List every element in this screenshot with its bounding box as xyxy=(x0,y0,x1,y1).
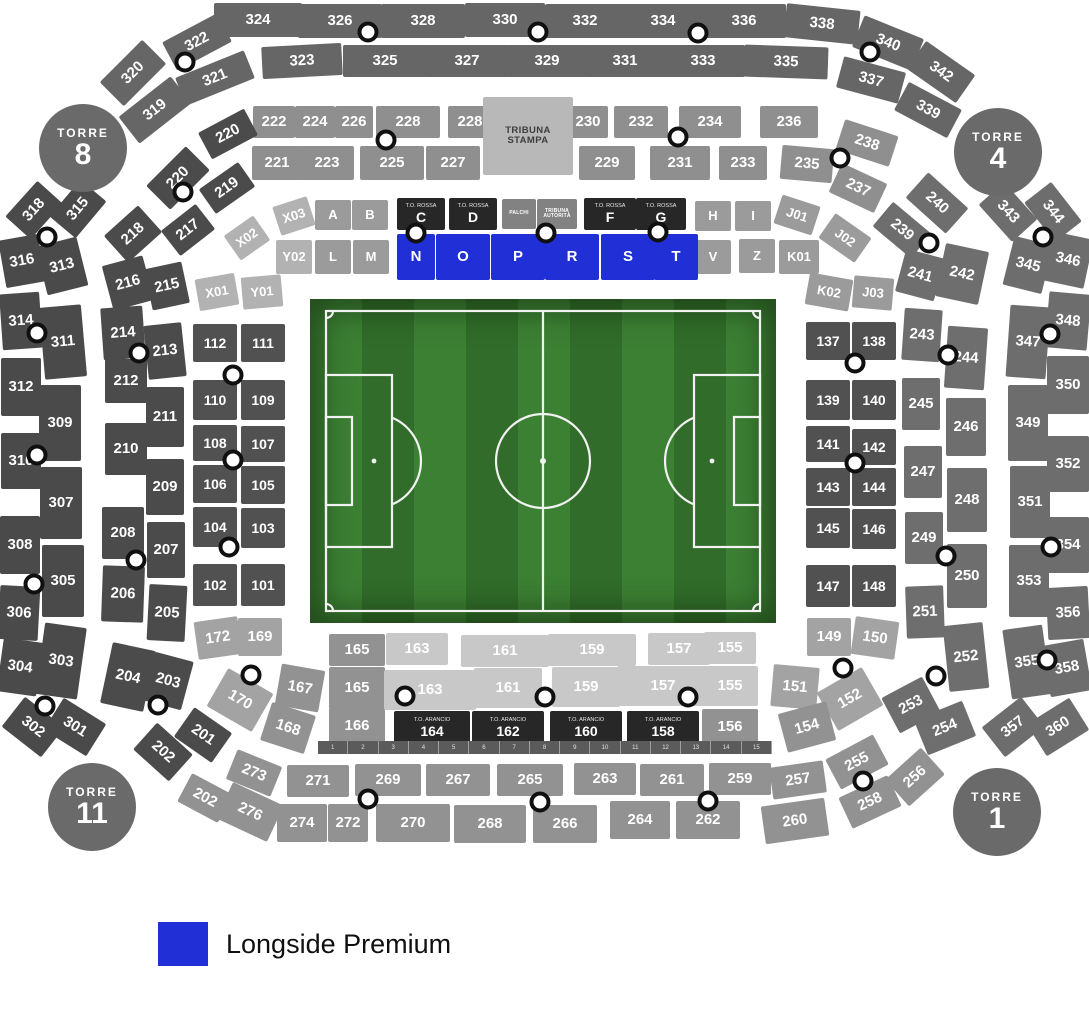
section-y01[interactable]: Y01 xyxy=(241,274,284,309)
section-h[interactable]: H xyxy=(695,201,731,231)
section-245[interactable]: 245 xyxy=(902,378,940,430)
section-s[interactable]: S xyxy=(601,234,655,280)
section-150[interactable]: 150 xyxy=(851,616,900,660)
gate-marker xyxy=(376,130,397,151)
section-235[interactable]: 235 xyxy=(780,145,835,183)
section-230[interactable]: 230 xyxy=(568,106,608,138)
section-x02[interactable]: X02 xyxy=(224,215,271,260)
section-233[interactable]: 233 xyxy=(719,146,767,180)
section-157[interactable]: 157 xyxy=(648,633,710,665)
section-217[interactable]: 217 xyxy=(161,204,215,256)
section-140[interactable]: 140 xyxy=(852,380,896,420)
gate-marker xyxy=(1041,537,1062,558)
section-237[interactable]: 237 xyxy=(829,163,888,213)
section-159[interactable]: 159 xyxy=(552,667,620,707)
section-223[interactable]: 223 xyxy=(300,146,354,180)
legend-label: Longside Premium xyxy=(226,929,451,960)
section-220[interactable]: 220 xyxy=(198,109,258,160)
gate-marker xyxy=(845,453,866,474)
legend: Longside Premium xyxy=(158,922,451,966)
section-260[interactable]: 260 xyxy=(761,798,830,845)
section-z[interactable]: Z xyxy=(739,239,775,273)
section-m[interactable]: M xyxy=(353,240,389,274)
section-148[interactable]: 148 xyxy=(852,565,896,607)
tower-4: TORRE4 xyxy=(954,108,1042,196)
section-251[interactable]: 251 xyxy=(905,585,945,638)
section-229[interactable]: 229 xyxy=(579,146,635,180)
section-i[interactable]: I xyxy=(735,201,771,231)
section-327[interactable]: 327 xyxy=(425,45,509,77)
section-224[interactable]: 224 xyxy=(295,106,335,138)
section-218[interactable]: 218 xyxy=(104,205,162,263)
section-158[interactable]: T.O. ARANCIO158 xyxy=(627,711,699,745)
gate-marker xyxy=(926,666,947,687)
section-151[interactable]: 151 xyxy=(770,664,819,710)
section-271[interactable]: 271 xyxy=(287,765,349,797)
section-j02[interactable]: J02 xyxy=(818,213,871,263)
gate-marker xyxy=(27,445,48,466)
section-165[interactable]: 165 xyxy=(329,667,385,709)
section-207[interactable]: 207 xyxy=(147,522,185,578)
section-303[interactable]: 303 xyxy=(35,622,87,699)
gate-marker xyxy=(1033,227,1054,248)
section-226[interactable]: 226 xyxy=(335,106,373,138)
section-360[interactable]: 360 xyxy=(1027,698,1089,757)
gate-marker xyxy=(395,686,416,707)
section-137[interactable]: 137 xyxy=(806,322,850,360)
section-272[interactable]: 272 xyxy=(328,804,368,842)
section-221[interactable]: 221 xyxy=(252,146,302,180)
section-palchi[interactable]: PALCHI xyxy=(502,199,536,229)
section-y02[interactable]: Y02 xyxy=(276,240,312,274)
section-325[interactable]: 325 xyxy=(343,45,427,77)
section-352[interactable]: 352 xyxy=(1047,436,1089,492)
section-335[interactable]: 335 xyxy=(743,45,828,80)
section-139[interactable]: 139 xyxy=(806,380,850,420)
section-267[interactable]: 267 xyxy=(426,764,490,796)
row-number-cell: 4 xyxy=(409,741,439,754)
section-149[interactable]: 149 xyxy=(807,618,851,656)
legend-swatch-longside-premium xyxy=(158,922,208,966)
row-number-cell: 13 xyxy=(681,741,711,754)
section-k01[interactable]: K01 xyxy=(779,240,819,274)
section-232[interactable]: 232 xyxy=(614,106,668,138)
gate-marker xyxy=(648,222,669,243)
section-o[interactable]: O xyxy=(436,234,490,280)
gate-marker xyxy=(148,695,169,716)
section-172[interactable]: 172 xyxy=(194,616,243,660)
section-329[interactable]: 329 xyxy=(507,45,587,77)
section-353[interactable]: 353 xyxy=(1009,545,1049,617)
row-number-cell: 15 xyxy=(742,741,772,754)
section-154[interactable]: 154 xyxy=(778,701,837,753)
section-r[interactable]: R xyxy=(545,234,599,280)
gate-marker xyxy=(938,345,959,366)
section-166[interactable]: 166 xyxy=(329,708,385,744)
gate-marker xyxy=(698,791,719,812)
section-350[interactable]: 350 xyxy=(1047,356,1089,414)
section-210[interactable]: 210 xyxy=(105,423,147,475)
section-331[interactable]: 331 xyxy=(585,45,665,77)
section-103[interactable]: 103 xyxy=(241,508,285,548)
tower-1: TORRE1 xyxy=(953,768,1041,856)
section-312[interactable]: 312 xyxy=(1,358,41,416)
gate-marker xyxy=(35,696,56,717)
football-pitch xyxy=(310,299,776,623)
gate-marker xyxy=(406,223,427,244)
section-155[interactable]: 155 xyxy=(702,666,758,706)
section-111[interactable]: 111 xyxy=(241,324,285,362)
section-106[interactable]: 106 xyxy=(193,465,237,503)
section-107[interactable]: 107 xyxy=(241,426,285,462)
section-264[interactable]: 264 xyxy=(610,801,670,839)
stadium-seating-map: 3243263283303323343363383403423233253273… xyxy=(0,0,1089,1032)
section-105[interactable]: 105 xyxy=(241,466,285,504)
gate-marker xyxy=(129,343,150,364)
section-112[interactable]: 112 xyxy=(193,324,237,362)
section-j03[interactable]: J03 xyxy=(852,275,895,310)
row-number-cell: 6 xyxy=(469,741,499,754)
row-number-cell: 5 xyxy=(439,741,469,754)
section-304[interactable]: 304 xyxy=(0,637,44,696)
row-number-cell: 10 xyxy=(590,741,620,754)
section-p[interactable]: P xyxy=(491,234,545,280)
section-209[interactable]: 209 xyxy=(146,459,184,515)
section-146[interactable]: 146 xyxy=(852,509,896,549)
section-231[interactable]: 231 xyxy=(650,146,710,180)
gate-marker xyxy=(24,574,45,595)
section-270[interactable]: 270 xyxy=(376,804,450,842)
gate-marker xyxy=(358,789,379,810)
row-number-cell: 3 xyxy=(379,741,409,754)
section-259[interactable]: 259 xyxy=(709,763,771,795)
section-155[interactable]: 155 xyxy=(704,632,756,664)
section-205[interactable]: 205 xyxy=(147,584,188,642)
section-274[interactable]: 274 xyxy=(277,804,327,842)
section-d[interactable]: T.O. ROSSAD xyxy=(449,198,497,230)
section-v[interactable]: V xyxy=(695,240,731,274)
section-215[interactable]: 215 xyxy=(144,262,190,311)
section-252[interactable]: 252 xyxy=(943,622,990,692)
section-351[interactable]: 351 xyxy=(1010,466,1050,538)
row-number-cell: 14 xyxy=(711,741,741,754)
section-332[interactable]: 332 xyxy=(545,4,625,38)
section-tribuna-stampa[interactable]: TRIBUNA STAMPA xyxy=(483,97,573,175)
section-349[interactable]: 349 xyxy=(1008,385,1048,461)
gate-marker xyxy=(219,537,240,558)
section-225[interactable]: 225 xyxy=(360,146,424,180)
section-311[interactable]: 311 xyxy=(39,304,87,379)
section-234[interactable]: 234 xyxy=(679,106,741,138)
section-222[interactable]: 222 xyxy=(253,106,295,138)
section-333[interactable]: 333 xyxy=(661,45,745,77)
row-number-strip: 123456789101112131415 xyxy=(318,741,772,754)
section-336[interactable]: 336 xyxy=(702,4,786,38)
section-b[interactable]: B xyxy=(352,200,388,230)
section-213[interactable]: 213 xyxy=(143,322,186,380)
gate-marker xyxy=(668,127,689,148)
section-328[interactable]: 328 xyxy=(381,4,465,38)
section-161[interactable]: 161 xyxy=(474,668,542,708)
section-308[interactable]: 308 xyxy=(0,516,40,574)
gate-marker xyxy=(358,22,379,43)
section-165[interactable]: 165 xyxy=(329,634,385,666)
section-110[interactable]: 110 xyxy=(193,380,237,420)
gate-marker xyxy=(37,227,58,248)
section-212[interactable]: 212 xyxy=(105,359,147,403)
section-l[interactable]: L xyxy=(315,240,351,274)
gate-marker xyxy=(536,223,557,244)
gate-marker xyxy=(223,450,244,471)
section-163[interactable]: 163 xyxy=(386,633,448,665)
gate-marker xyxy=(175,52,196,73)
section-169[interactable]: 169 xyxy=(238,618,282,656)
section-j01[interactable]: J01 xyxy=(773,195,820,236)
section-141[interactable]: 141 xyxy=(806,426,850,462)
gate-marker xyxy=(936,546,957,567)
section-x03[interactable]: X03 xyxy=(272,196,316,236)
row-number-cell: 1 xyxy=(318,741,348,754)
tower-11: TORRE11 xyxy=(48,763,136,851)
gate-marker xyxy=(919,233,940,254)
section-206[interactable]: 206 xyxy=(101,565,145,622)
section-156[interactable]: 156 xyxy=(702,709,758,745)
gate-marker xyxy=(530,792,551,813)
gate-marker xyxy=(223,365,244,386)
section-265[interactable]: 265 xyxy=(497,764,563,796)
row-number-cell: 12 xyxy=(651,741,681,754)
section-268[interactable]: 268 xyxy=(454,805,526,843)
row-number-cell: 11 xyxy=(621,741,651,754)
section-161[interactable]: 161 xyxy=(461,635,549,667)
gate-marker xyxy=(678,687,699,708)
gate-marker xyxy=(27,323,48,344)
section-257[interactable]: 257 xyxy=(769,760,827,799)
pitch-lines xyxy=(310,299,776,623)
section-263[interactable]: 263 xyxy=(574,763,636,795)
section-323[interactable]: 323 xyxy=(261,43,343,79)
row-number-cell: 8 xyxy=(530,741,560,754)
section-109[interactable]: 109 xyxy=(241,380,285,420)
section-102[interactable]: 102 xyxy=(193,564,237,606)
section-211[interactable]: 211 xyxy=(146,387,184,447)
gate-marker xyxy=(688,23,709,44)
section-162[interactable]: T.O. ARANCIO162 xyxy=(472,711,544,745)
section-164[interactable]: T.O. ARANCIO164 xyxy=(394,711,470,745)
section-236[interactable]: 236 xyxy=(760,106,818,138)
section-307[interactable]: 307 xyxy=(40,467,82,539)
gate-marker xyxy=(830,148,851,169)
section-159[interactable]: 159 xyxy=(548,634,636,666)
section-338[interactable]: 338 xyxy=(783,3,860,45)
section-a[interactable]: A xyxy=(315,200,351,230)
section-143[interactable]: 143 xyxy=(806,468,850,506)
section-242[interactable]: 242 xyxy=(935,243,989,305)
gate-marker xyxy=(528,22,549,43)
section-k02[interactable]: K02 xyxy=(805,272,854,311)
row-number-cell: 7 xyxy=(500,741,530,754)
gate-marker xyxy=(1040,324,1061,345)
section-x01[interactable]: X01 xyxy=(195,273,240,311)
section-247[interactable]: 247 xyxy=(904,446,942,498)
section-144[interactable]: 144 xyxy=(852,468,896,506)
gate-marker xyxy=(860,42,881,63)
gate-marker xyxy=(126,550,147,571)
gate-marker xyxy=(241,665,262,686)
tower-8: TORRE8 xyxy=(39,104,127,192)
gate-marker xyxy=(535,687,556,708)
section-305[interactable]: 305 xyxy=(42,545,84,617)
section-246[interactable]: 246 xyxy=(946,398,986,456)
section-f[interactable]: T.O. ROSSAF xyxy=(584,198,636,230)
section-160[interactable]: T.O. ARANCIO160 xyxy=(550,711,622,745)
gate-marker xyxy=(173,182,194,203)
section-356[interactable]: 356 xyxy=(1046,586,1089,640)
section-227[interactable]: 227 xyxy=(426,146,480,180)
section-101[interactable]: 101 xyxy=(241,564,285,606)
gate-marker xyxy=(833,658,854,679)
section-261[interactable]: 261 xyxy=(640,764,704,796)
row-number-cell: 2 xyxy=(348,741,378,754)
row-number-cell: 9 xyxy=(560,741,590,754)
gate-marker xyxy=(845,353,866,374)
section-248[interactable]: 248 xyxy=(947,468,987,532)
gate-marker xyxy=(1037,650,1058,671)
gate-marker xyxy=(853,771,874,792)
section-147[interactable]: 147 xyxy=(806,565,850,607)
section-145[interactable]: 145 xyxy=(806,508,850,548)
